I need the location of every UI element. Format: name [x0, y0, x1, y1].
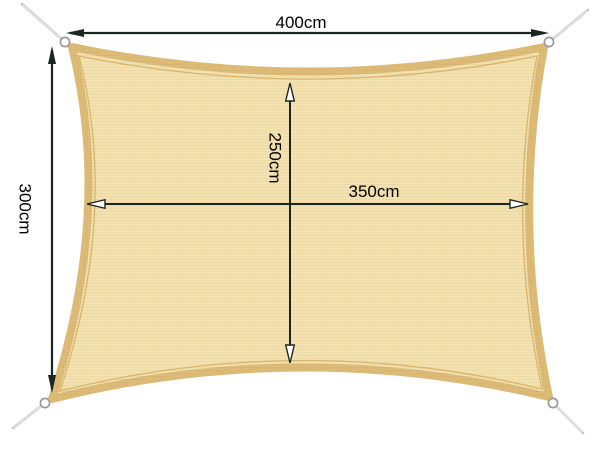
arrowhead-left-icon — [66, 29, 84, 37]
corner-ring-top-left — [60, 37, 69, 46]
dimension-label-inner-height: 250cm — [266, 132, 285, 183]
rope-top-left — [22, 4, 65, 42]
dimension-label-top-width: 400cm — [275, 13, 326, 32]
corner-ring-bottom-left — [40, 398, 49, 407]
rope-bottom-left — [13, 403, 45, 428]
rope-bottom-right — [553, 403, 583, 433]
corner-ring-bottom-right — [548, 398, 557, 407]
arrowhead-right-icon — [531, 29, 549, 37]
dimension-left-height: 300cm — [16, 46, 57, 393]
dimension-label-inner-width: 350cm — [348, 182, 399, 201]
arrowhead-up-icon — [48, 46, 56, 64]
sail-fabric-texture — [52, 47, 549, 399]
dimension-label-left-height: 300cm — [16, 183, 35, 234]
corner-ring-top-right — [544, 37, 553, 46]
shade-sail-diagram: 400cm 300cm 250cm 350cm — [0, 0, 600, 450]
dimension-top-width: 400cm — [66, 13, 549, 37]
rope-top-right — [549, 10, 588, 42]
product-diagram-canvas: 400cm 300cm 250cm 350cm — [0, 0, 600, 450]
